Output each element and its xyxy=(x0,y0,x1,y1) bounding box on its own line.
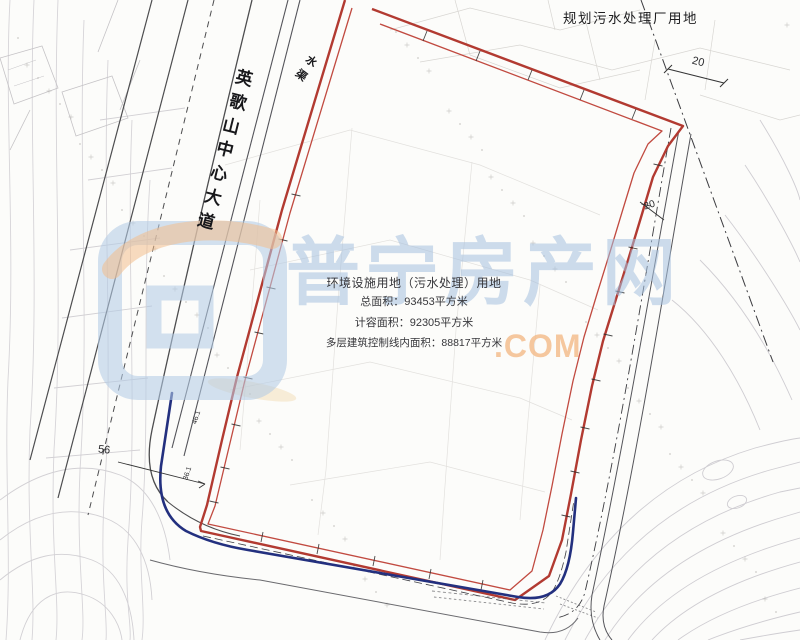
total-area-value: 总面积：93453平方米 xyxy=(316,292,512,313)
site-plan-page: 普宁房产网 .COM 规划污水处理厂用地 英歌山中心大道 水渠 环境设施用地（污… xyxy=(0,0,800,640)
control-line-area-value: 多层建筑控制线内面积：88817平方米 xyxy=(316,334,512,353)
watermark-logo xyxy=(92,205,312,415)
planned-sewage-plant-label: 规划污水处理厂用地 xyxy=(563,7,698,27)
land-use-title: 环境设施用地（污水处理）用地 xyxy=(316,275,512,292)
dimension-label-56: 56 xyxy=(97,443,110,456)
land-use-info-block: 环境设施用地（污水处理）用地 总面积：93453平方米 计容面积：92305平方… xyxy=(316,275,512,353)
floor-area-value: 计容面积：92305平方米 xyxy=(316,313,512,334)
